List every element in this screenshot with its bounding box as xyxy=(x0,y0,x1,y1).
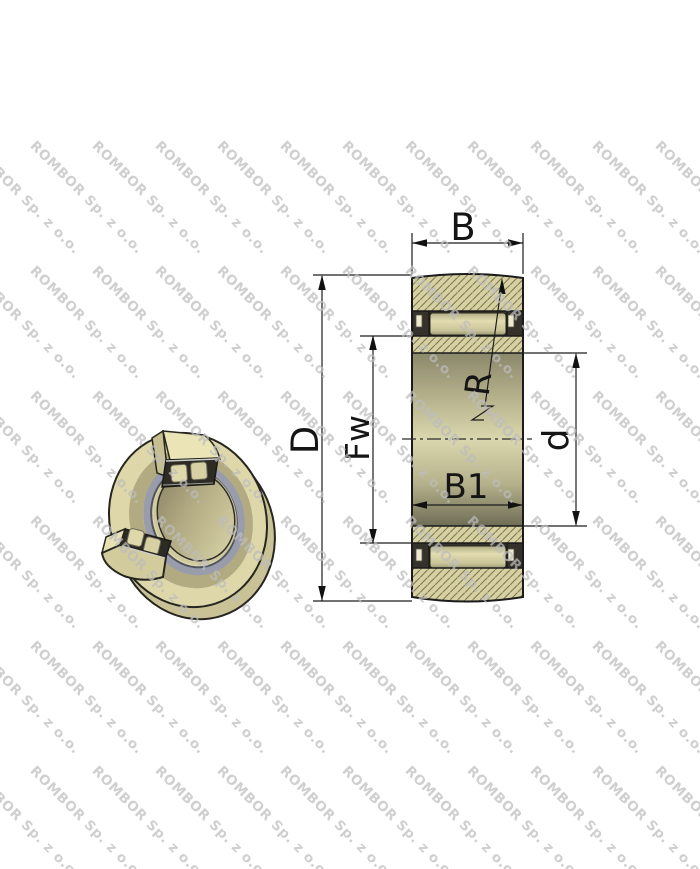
cross-section-view xyxy=(402,274,532,602)
roller-pocket-top xyxy=(412,311,523,336)
label-Fw: Fw xyxy=(338,415,377,461)
label-B1: B1 xyxy=(444,467,489,507)
technical-drawing-svg: B B1 D Fw d R xyxy=(0,0,700,869)
label-R: R xyxy=(458,369,501,397)
label-B: B xyxy=(450,206,475,249)
needle-roller xyxy=(430,546,506,568)
bearing-3d-view xyxy=(87,412,298,640)
label-D: D xyxy=(284,426,327,455)
roller-pocket-bottom xyxy=(412,543,523,568)
label-d: d xyxy=(536,429,577,452)
page: B B1 D Fw d R ROMBOR Sp. z o.o.ROMBOR Sp… xyxy=(0,0,700,869)
